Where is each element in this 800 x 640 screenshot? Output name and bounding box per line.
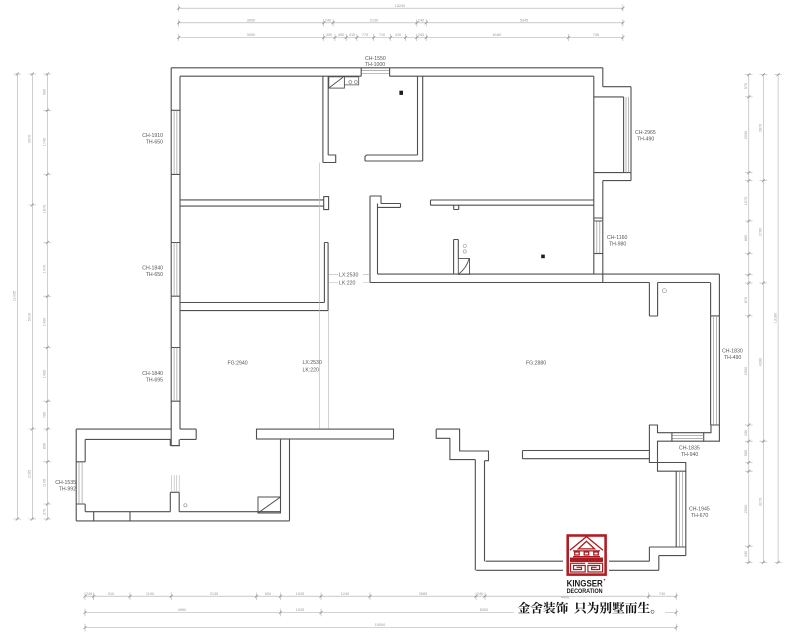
svg-text:TH-670: TH-670 bbox=[691, 513, 708, 519]
svg-text:1470: 1470 bbox=[43, 265, 47, 273]
svg-text:LK:220: LK:220 bbox=[303, 368, 320, 374]
svg-text:910: 910 bbox=[108, 592, 114, 596]
svg-text:740: 740 bbox=[659, 592, 665, 596]
svg-text:TH-650: TH-650 bbox=[146, 140, 163, 146]
svg-text:5410: 5410 bbox=[28, 313, 32, 321]
svg-text:1870: 1870 bbox=[43, 205, 47, 213]
svg-text:1035: 1035 bbox=[296, 592, 304, 596]
svg-text:TH-980: TH-980 bbox=[609, 242, 626, 248]
svg-text:710: 710 bbox=[379, 33, 385, 37]
svg-text:CH-1160: CH-1160 bbox=[607, 235, 627, 241]
svg-text:3050: 3050 bbox=[247, 18, 255, 22]
svg-text:1740: 1740 bbox=[43, 138, 47, 146]
svg-text:TH-1000: TH-1000 bbox=[365, 62, 385, 68]
svg-text:240: 240 bbox=[477, 592, 483, 596]
svg-text:11435: 11435 bbox=[13, 291, 17, 301]
svg-text:4960: 4960 bbox=[178, 608, 186, 612]
svg-text:600: 600 bbox=[265, 592, 271, 596]
svg-text:TH-650: TH-650 bbox=[146, 272, 163, 278]
svg-text:240: 240 bbox=[418, 33, 424, 37]
svg-text:745: 745 bbox=[593, 33, 599, 37]
svg-text:TH-992: TH-992 bbox=[59, 487, 76, 493]
svg-text:1070: 1070 bbox=[744, 197, 748, 205]
svg-text:2030: 2030 bbox=[744, 131, 748, 139]
svg-text:2135: 2135 bbox=[210, 592, 218, 596]
svg-text:CH-1535: CH-1535 bbox=[55, 480, 76, 486]
svg-text:1035: 1035 bbox=[296, 608, 304, 612]
svg-text:FG:2940: FG:2940 bbox=[228, 361, 248, 367]
svg-text:1190: 1190 bbox=[146, 592, 154, 596]
svg-text:TH-940: TH-940 bbox=[681, 452, 698, 458]
svg-text:770: 770 bbox=[362, 33, 368, 37]
svg-text:4280: 4280 bbox=[759, 358, 763, 366]
svg-text:2870: 2870 bbox=[759, 124, 763, 132]
svg-text:3050: 3050 bbox=[247, 33, 255, 37]
svg-text:LX:2530: LX:2530 bbox=[303, 360, 322, 366]
svg-text:410: 410 bbox=[349, 33, 355, 37]
svg-text:565: 565 bbox=[744, 450, 748, 456]
svg-text:1400: 1400 bbox=[43, 318, 47, 326]
svg-text:370: 370 bbox=[43, 509, 47, 515]
svg-text:CH-1840: CH-1840 bbox=[142, 371, 163, 377]
svg-text:5345: 5345 bbox=[520, 18, 528, 22]
svg-text:2130: 2130 bbox=[370, 18, 378, 22]
svg-text:3370: 3370 bbox=[28, 135, 32, 143]
svg-text:1240: 1240 bbox=[341, 592, 349, 596]
svg-text:570: 570 bbox=[744, 83, 748, 89]
svg-text:860: 860 bbox=[744, 235, 748, 241]
svg-text:240: 240 bbox=[86, 592, 92, 596]
svg-text:430: 430 bbox=[744, 430, 748, 436]
svg-text:15000: 15000 bbox=[375, 623, 386, 627]
svg-text:2900: 2900 bbox=[744, 367, 748, 375]
svg-text:CH-1945: CH-1945 bbox=[689, 507, 710, 513]
svg-text:300: 300 bbox=[326, 33, 332, 37]
svg-text:CH-1830: CH-1830 bbox=[722, 349, 743, 355]
svg-text:1460: 1460 bbox=[43, 370, 47, 378]
svg-text:240: 240 bbox=[325, 18, 331, 22]
svg-text:TH-490: TH-490 bbox=[724, 355, 741, 361]
svg-text:2760: 2760 bbox=[759, 228, 763, 236]
svg-text:1145: 1145 bbox=[43, 479, 47, 487]
svg-text:2685: 2685 bbox=[419, 592, 427, 596]
svg-text:890: 890 bbox=[43, 443, 47, 449]
svg-text:8300: 8300 bbox=[480, 608, 488, 612]
svg-text:TH-695: TH-695 bbox=[146, 378, 163, 384]
svg-text:KINGSER: KINGSER bbox=[567, 578, 603, 589]
svg-text:13180: 13180 bbox=[773, 313, 777, 324]
svg-text:2165: 2165 bbox=[28, 470, 32, 478]
svg-text:CH-2965: CH-2965 bbox=[635, 130, 656, 136]
svg-text:760: 760 bbox=[43, 412, 47, 418]
svg-text:870: 870 bbox=[744, 297, 748, 303]
svg-text:2000: 2000 bbox=[744, 505, 748, 513]
svg-text:410: 410 bbox=[395, 33, 401, 37]
svg-text:FG:2880: FG:2880 bbox=[526, 361, 546, 367]
svg-text:DECORATION: DECORATION bbox=[567, 588, 603, 595]
svg-text:960: 960 bbox=[43, 89, 47, 95]
svg-text:CH-1835: CH-1835 bbox=[679, 446, 700, 452]
svg-text:6180: 6180 bbox=[493, 33, 501, 37]
svg-text:13240: 13240 bbox=[395, 4, 406, 8]
svg-text:TH-490: TH-490 bbox=[637, 137, 654, 143]
svg-text:450: 450 bbox=[338, 33, 344, 37]
svg-text:LK:220: LK:220 bbox=[339, 281, 356, 287]
svg-text:430: 430 bbox=[744, 551, 748, 557]
svg-text:4400: 4400 bbox=[561, 595, 569, 599]
svg-text:3270: 3270 bbox=[759, 498, 763, 506]
svg-text:CH-1840: CH-1840 bbox=[142, 266, 163, 272]
svg-text:LX:2530: LX:2530 bbox=[339, 273, 358, 279]
svg-text:CH-1910: CH-1910 bbox=[142, 133, 163, 139]
svg-text:240: 240 bbox=[418, 18, 424, 22]
